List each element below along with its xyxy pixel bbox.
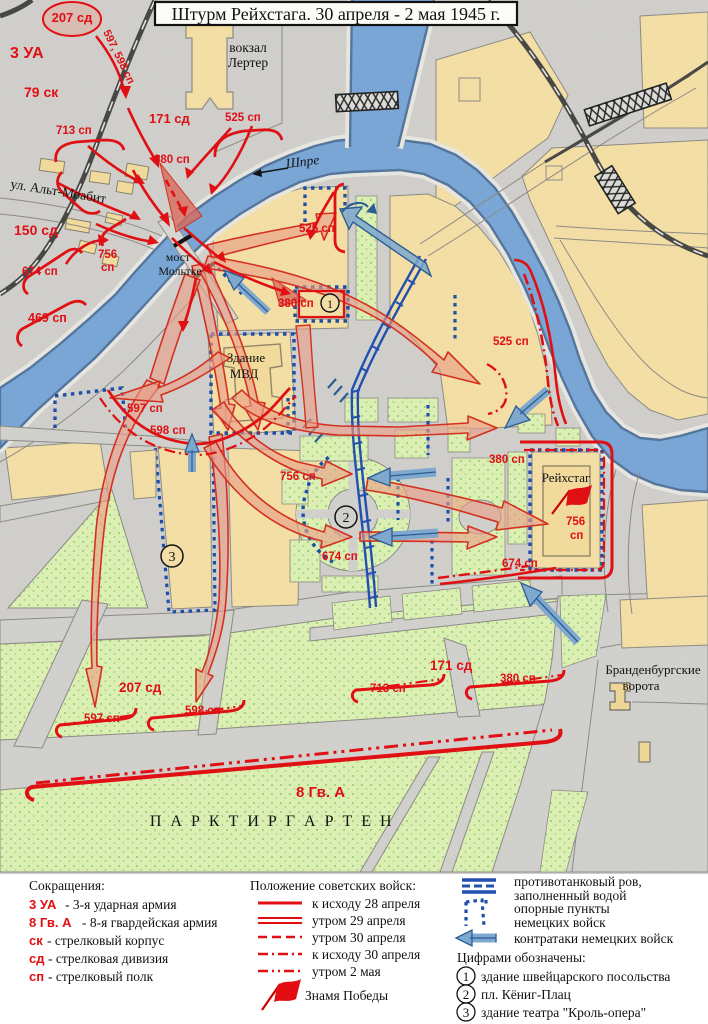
svg-text:380 сп: 380 сп [489, 454, 525, 466]
svg-text:утром 30 апреля: утром 30 апреля [312, 930, 406, 945]
svg-text:79 ск: 79 ск [24, 84, 59, 100]
svg-text:525 сп: 525 сп [225, 112, 261, 124]
svg-text:утром 29 апреля: утром 29 апреля [312, 913, 406, 928]
svg-text:380 сп: 380 сп [154, 154, 190, 166]
svg-text:Сокращения:: Сокращения: [29, 878, 105, 893]
svg-text:сп: сп [29, 969, 44, 984]
svg-text:Бранденбургские: Бранденбургские [605, 662, 701, 677]
svg-text:немецких войск: немецких войск [514, 915, 606, 930]
svg-text:8 Гв. А: 8 Гв. А [296, 784, 345, 801]
svg-text:Штурм Рейхстага. 30 апреля - 2: Штурм Рейхстага. 30 апреля - 2 мая 1945 … [172, 4, 501, 24]
svg-text:674 сп: 674 сп [502, 558, 538, 570]
svg-text:756 сп: 756 сп [280, 471, 316, 483]
svg-text:Знамя Победы: Знамя Победы [305, 988, 388, 1003]
svg-text:к исходу 30 апреля: к исходу 30 апреля [312, 947, 420, 962]
svg-text:Лертер: Лертер [228, 55, 269, 70]
svg-text:150 сд: 150 сд [14, 222, 58, 238]
svg-text:- 3-я ударная армия: - 3-я ударная армия [65, 897, 177, 912]
svg-text:мост: мост [166, 250, 191, 264]
svg-text:469 сп: 469 сп [28, 311, 67, 325]
svg-text:пл. Кёниг-Плац: пл. Кёниг-Плац [481, 987, 571, 1002]
svg-text:8 Гв. А: 8 Гв. А [29, 915, 72, 930]
svg-text:674 сп: 674 сп [22, 266, 58, 278]
svg-text:2: 2 [343, 511, 350, 526]
svg-text:713 сп: 713 сп [370, 683, 406, 695]
svg-text:сд: сд [29, 951, 45, 966]
svg-text:контратаки немецких войск: контратаки немецких войск [514, 931, 674, 946]
svg-text:сп: сп [570, 530, 583, 542]
svg-text:207 сд: 207 сд [119, 680, 162, 695]
svg-text:- стрелковый полк: - стрелковый полк [48, 969, 154, 984]
svg-text:здание театра "Кроль-опера": здание театра "Кроль-опера" [481, 1005, 646, 1020]
svg-text:380 сп: 380 сп [500, 673, 536, 685]
svg-text:Мольтке: Мольтке [158, 264, 201, 278]
svg-text:ворота: ворота [623, 678, 660, 693]
svg-text:утром 2 мая: утром 2 мая [312, 964, 381, 979]
svg-text:598 сп: 598 сп [185, 705, 221, 717]
svg-text:противотанковый ров,: противотанковый ров, [514, 874, 642, 889]
svg-text:- стрелковый корпус: - стрелковый корпус [47, 933, 164, 948]
svg-text:- 8-я гвардейская армия: - 8-я гвардейская армия [82, 915, 218, 930]
svg-text:МВД: МВД [230, 366, 259, 381]
svg-text:3: 3 [463, 1005, 470, 1020]
svg-text:380 сп: 380 сп [278, 298, 314, 310]
svg-text:к исходу 28 апреля: к исходу 28 апреля [312, 896, 420, 911]
svg-text:Цифрами обозначены:: Цифрами обозначены: [457, 950, 586, 965]
svg-text:1: 1 [463, 969, 470, 984]
svg-text:вокзал: вокзал [229, 40, 267, 55]
svg-text:П А Р К Т И Р Г А Р Т Е Н: П А Р К Т И Р Г А Р Т Е Н [150, 813, 394, 830]
svg-text:2: 2 [463, 987, 470, 1002]
svg-text:1: 1 [327, 297, 333, 311]
svg-text:3 УА: 3 УА [10, 45, 44, 62]
svg-text:713 сп: 713 сп [56, 125, 92, 137]
svg-text:207 сд: 207 сд [52, 10, 94, 25]
svg-text:756: 756 [566, 516, 585, 528]
svg-text:Положение советских войск:: Положение советских войск: [250, 878, 416, 893]
svg-text:3: 3 [169, 550, 176, 565]
svg-text:сп: сп [101, 262, 114, 274]
svg-text:597 сп: 597 сп [84, 713, 120, 725]
svg-text:598 сп: 598 сп [150, 425, 186, 437]
svg-text:Здание: Здание [227, 350, 265, 365]
svg-text:525 сп: 525 сп [299, 223, 335, 235]
svg-text:171 сд: 171 сд [149, 111, 191, 126]
svg-text:525 сп: 525 сп [493, 336, 529, 348]
svg-text:171 сд: 171 сд [430, 658, 473, 673]
svg-text:опорные пункты: опорные пункты [514, 901, 610, 916]
svg-text:- стрелковая дивизия: - стрелковая дивизия [48, 951, 168, 966]
svg-text:597 сп: 597 сп [127, 403, 163, 415]
svg-text:674 сп: 674 сп [322, 551, 358, 563]
svg-text:ск: ск [29, 933, 43, 948]
svg-text:здание швейцарского посольства: здание швейцарского посольства [481, 969, 670, 984]
svg-text:3 УА: 3 УА [29, 897, 57, 912]
svg-text:756: 756 [98, 249, 117, 261]
svg-text:Рейхстаг: Рейхстаг [542, 470, 591, 485]
